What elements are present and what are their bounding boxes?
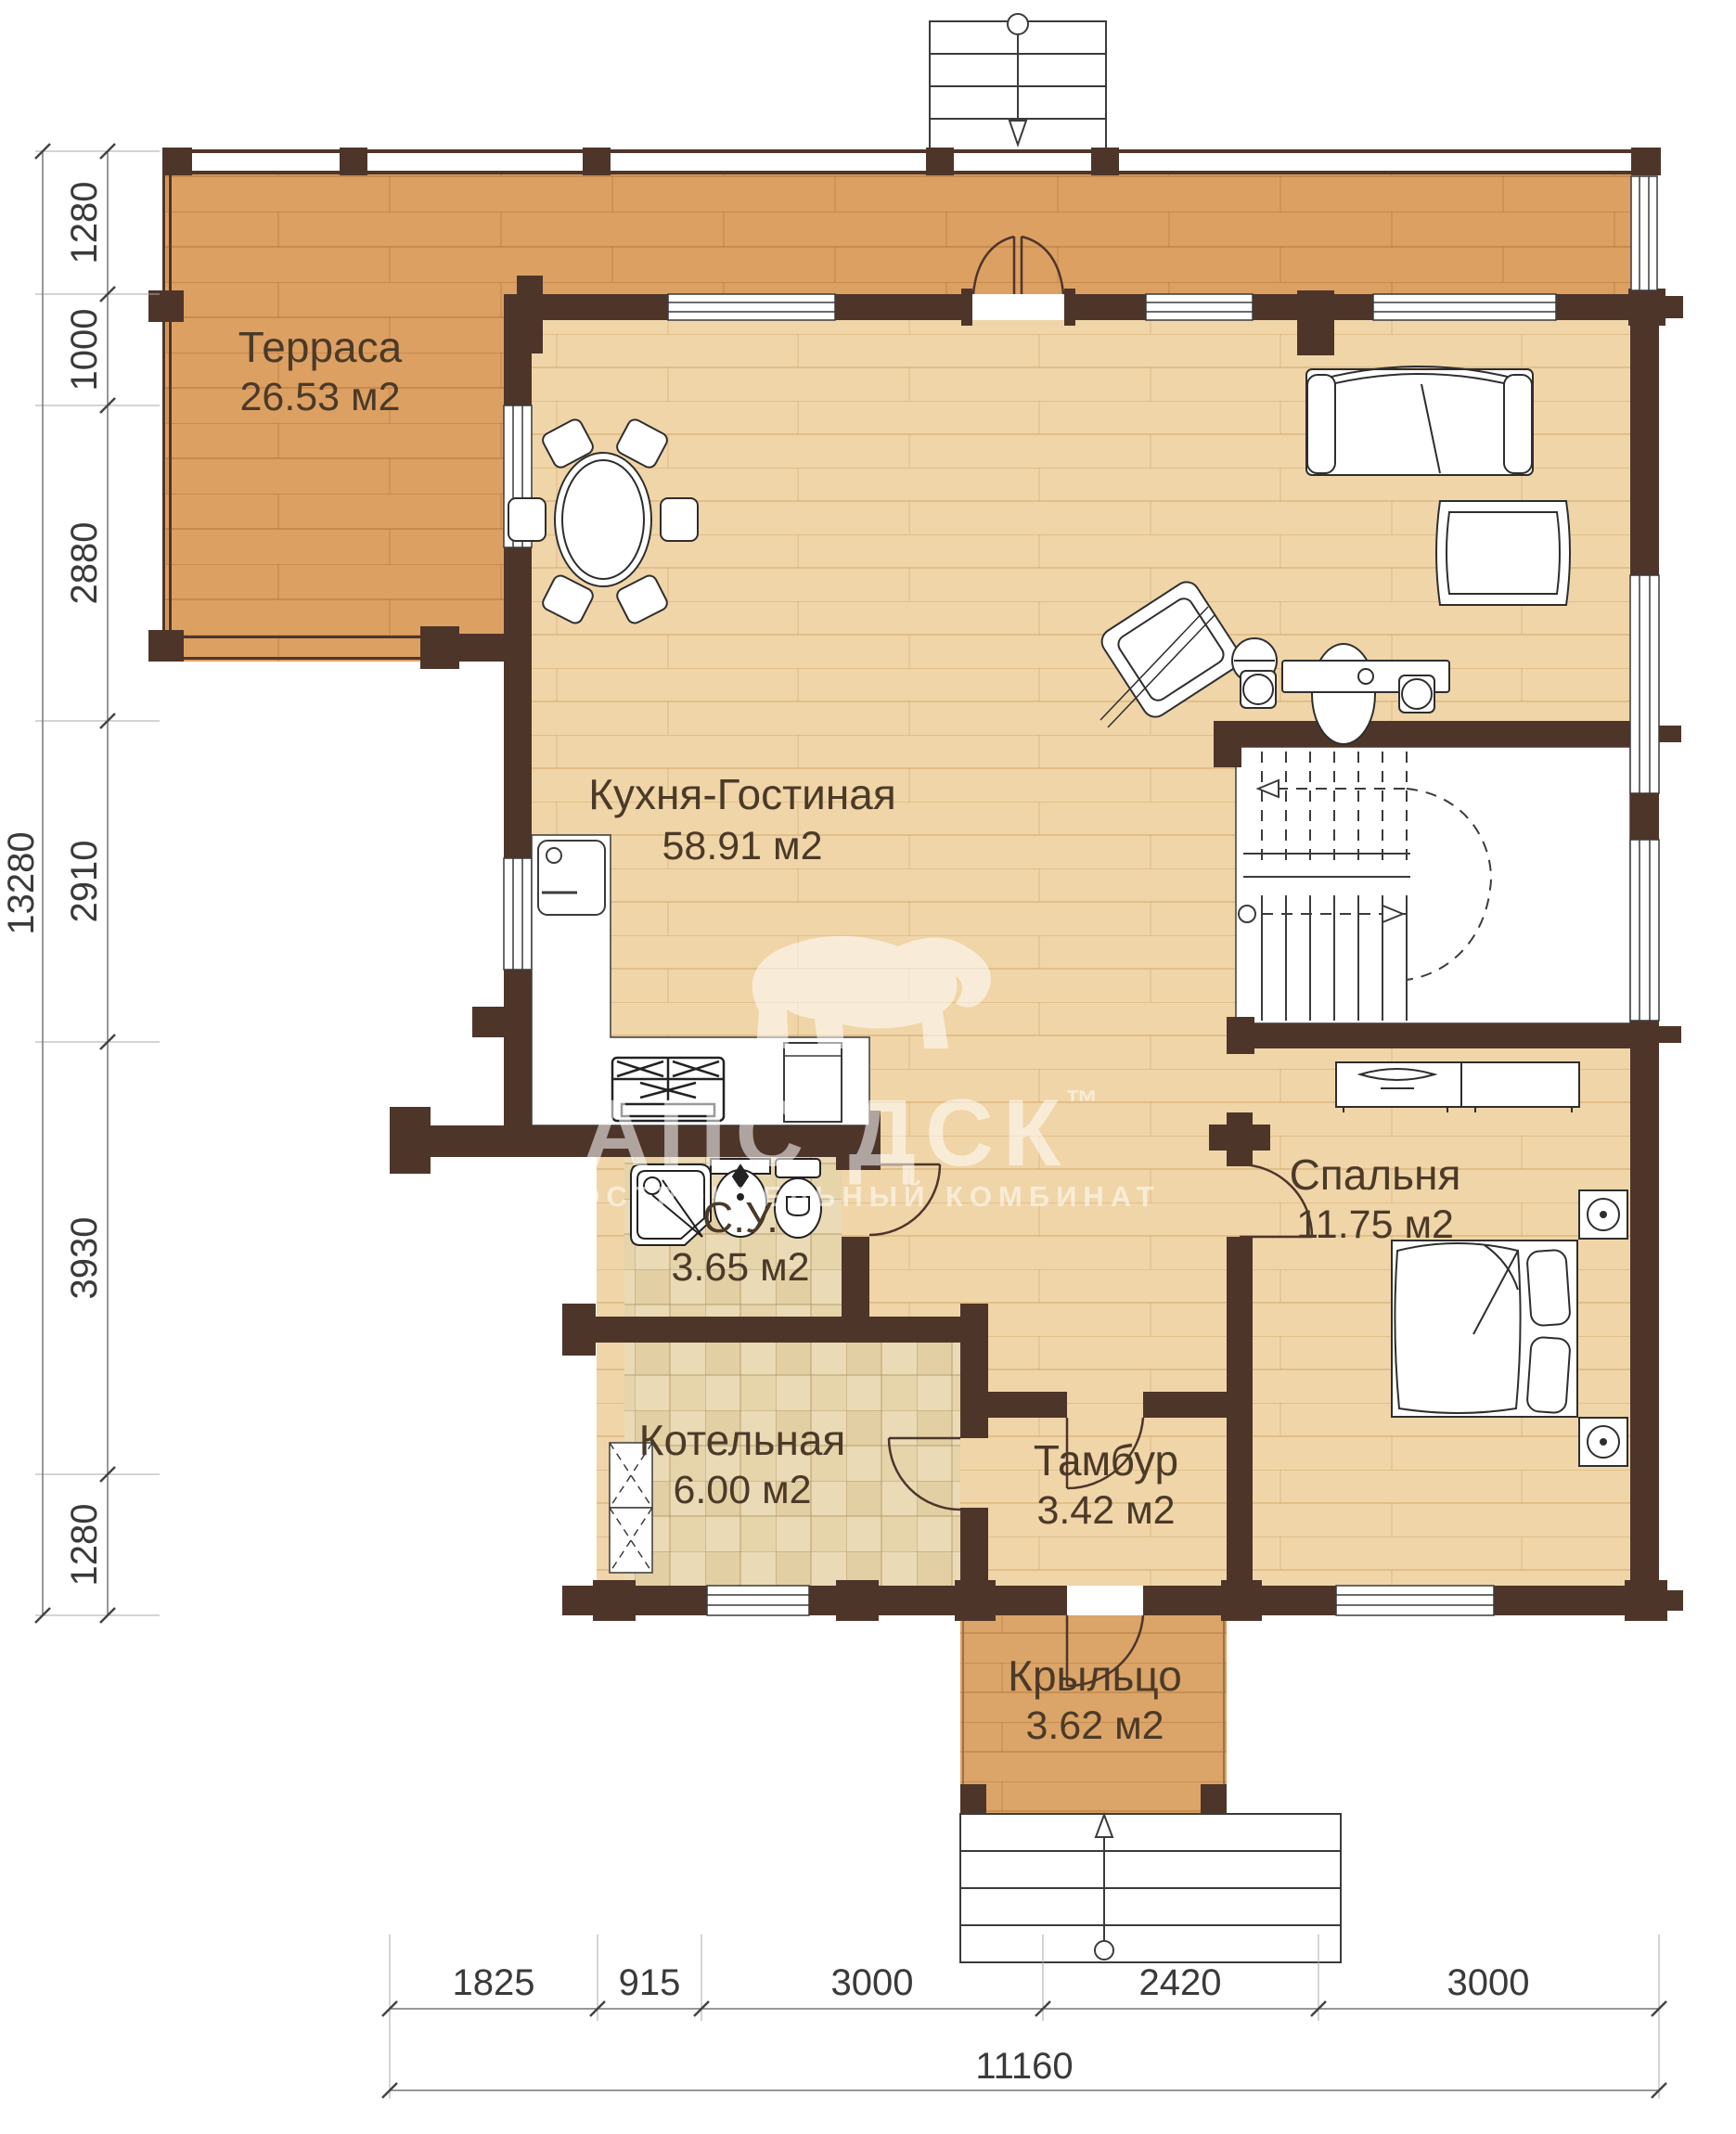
window-bedroom-bottom [1336,1586,1494,1615]
dimension-label: 1280 [64,1504,105,1587]
room-label: Кухня-Гостиная [588,770,896,818]
room-area-label: 11.75 м2 [1296,1202,1454,1247]
stairwell-floor [1236,747,1630,1023]
room-label: Спальня [1290,1151,1461,1199]
watermark-brand: АПС ДСК [582,1080,1070,1186]
window-living-right [1630,575,1659,793]
watermark-tm: ™ [1065,1083,1099,1121]
dimension-label: 11160 [975,2046,1073,2087]
window-living-top-2 [1373,294,1556,320]
room-area-label: 3.42 м2 [1036,1488,1175,1533]
room-label: Тамбур [1034,1436,1178,1485]
dimension-label: 3000 [1447,1962,1530,2003]
watermark-subtitle: ДОМОСТРОИТЕЛЬНЫЙ КОМБИНАТ [491,1179,1160,1213]
dimension-label: 1825 [453,1962,535,2003]
window-terrace-rail-right [1631,176,1657,290]
nightstand [1579,1190,1627,1239]
armchair-right [1436,501,1570,605]
pouf [1399,675,1434,713]
room-area-label: 58.91 м2 [662,824,822,868]
tv-dresser [1336,1062,1579,1112]
pouf [1241,671,1276,708]
room-boiler [624,1343,960,1586]
dimension-label: 13280 [1,831,42,934]
pillow [1526,1250,1570,1327]
dimension-label: 2420 [1139,1962,1222,2003]
room-label: С.У. [702,1193,778,1241]
window-boiler-bottom [707,1586,809,1615]
entry-stairs-top [930,14,1106,151]
porch-steps [960,1814,1341,1962]
floor-plan: АПС ДСК ™ ДОМОСТРОИТЕЛЬНЫЙ КОМБИНАТ Терр… [0,0,1736,2134]
pillow [1526,1337,1570,1414]
room-label: Терраса [238,323,403,371]
dining-chair [508,498,546,541]
room-area-label: 3.65 м2 [671,1245,809,1290]
window-kitchen-left-2 [504,858,532,970]
dimension-label: 915 [619,1962,681,2003]
window-stair-right [1630,840,1659,1021]
dimension-label: 1280 [64,182,105,264]
room-area-label: 26.53 м2 [239,375,400,419]
room-area-label: 3.62 м2 [1025,1703,1164,1748]
window-kitchen-top [668,294,835,320]
fridge [538,841,605,915]
dining-chair [661,498,698,541]
dimension-label: 2910 [64,841,105,923]
window-living-top-1 [1146,294,1253,320]
room-area-label: 6.00 м2 [673,1468,811,1512]
nightstand [1579,1418,1627,1466]
dimension-label: 3930 [64,1217,105,1300]
room-label: Котельная [639,1416,846,1464]
dimension-label: 2880 [64,522,105,605]
dimension-label: 3000 [831,1962,914,2003]
dimension-label: 1000 [64,309,105,392]
dining-table [555,453,651,586]
sofa [1306,366,1533,475]
room-label: Крыльцо [1008,1652,1182,1700]
outside-area [504,1157,597,1615]
bed [1392,1241,1577,1417]
